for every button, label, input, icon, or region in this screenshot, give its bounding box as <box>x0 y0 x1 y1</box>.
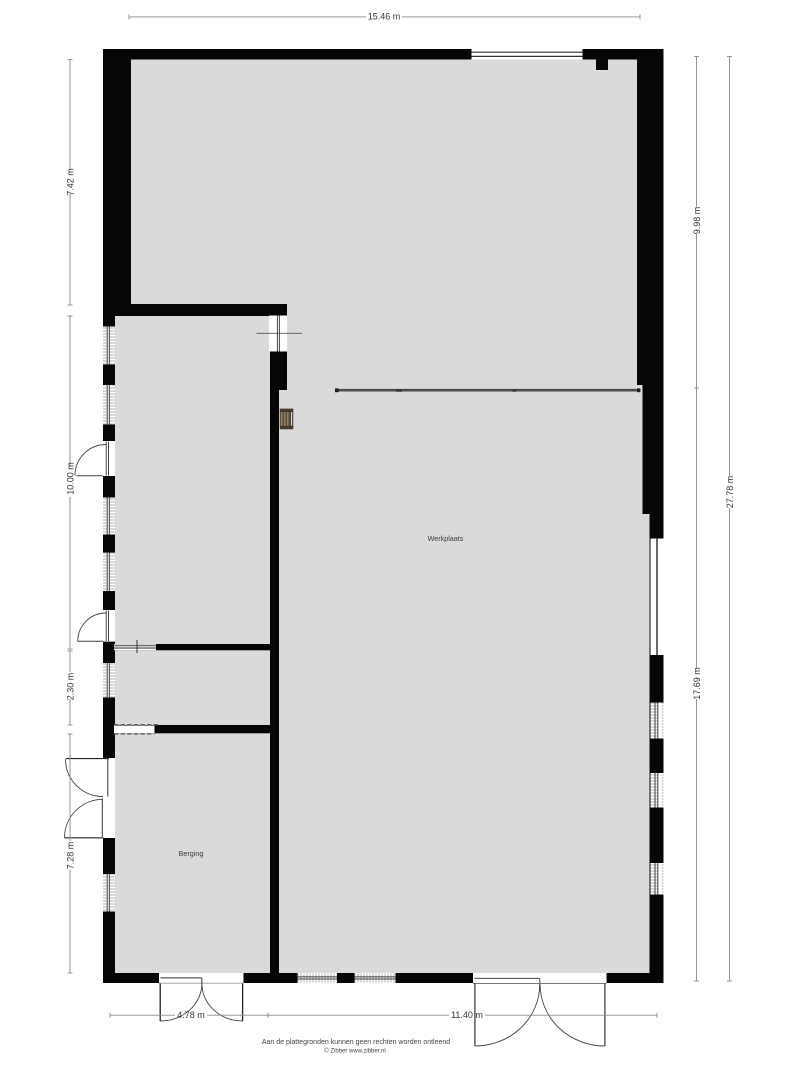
svg-text:4.78 m: 4.78 m <box>177 1010 205 1020</box>
svg-text:15.46 m: 15.46 m <box>368 12 401 22</box>
svg-text:9.98 m: 9.98 m <box>692 207 702 235</box>
svg-text:© Zibber www.zibber.nl: © Zibber www.zibber.nl <box>324 1048 385 1055</box>
svg-text:17.69 m: 17.69 m <box>692 667 702 700</box>
svg-text:Berging: Berging <box>179 849 204 858</box>
svg-text:Aan de plattegronden kunnen ge: Aan de plattegronden kunnen geen rechten… <box>262 1039 450 1046</box>
svg-text:2.30 m: 2.30 m <box>66 673 76 701</box>
svg-text:7.42 m: 7.42 m <box>66 168 76 196</box>
svg-text:7.28 m: 7.28 m <box>66 842 76 870</box>
svg-text:Werkplaats: Werkplaats <box>428 534 464 543</box>
svg-text:11.40 m: 11.40 m <box>451 1010 483 1020</box>
svg-text:27.78 m: 27.78 m <box>725 476 735 509</box>
svg-text:10.00 m: 10.00 m <box>66 462 76 495</box>
